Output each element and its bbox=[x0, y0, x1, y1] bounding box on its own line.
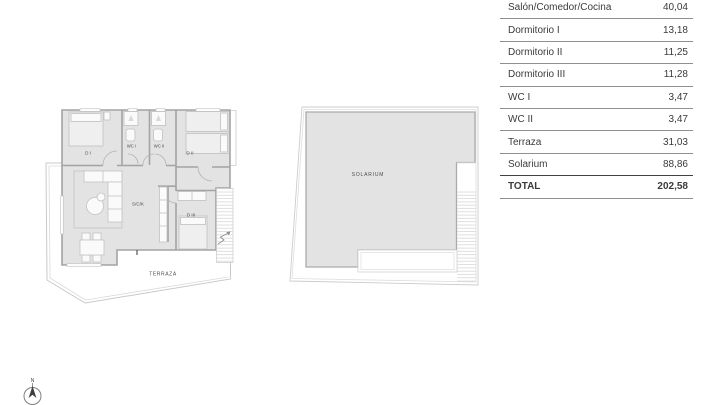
area-table-row: WC I 3,47 bbox=[500, 87, 693, 109]
label-dormitorio3: D III bbox=[187, 213, 195, 218]
room-area: 11,25 bbox=[664, 47, 693, 58]
label-solarium: SOLARIUM bbox=[352, 172, 385, 178]
room-area: 13,18 bbox=[663, 25, 693, 36]
label-wc1: WC I bbox=[127, 144, 136, 149]
solarium-plan: SOLARIUM bbox=[283, 100, 483, 290]
room-name: Dormitorio III bbox=[500, 69, 565, 80]
area-table-row: Solarium 88,86 bbox=[500, 154, 693, 176]
room-name: WC I bbox=[500, 92, 530, 103]
bed-dormitorio3 bbox=[178, 192, 207, 250]
area-table: Salón/Comedor/Cocina 40,04 Dormitorio I … bbox=[500, 0, 693, 199]
area-table-row: Dormitorio III 11,28 bbox=[500, 64, 693, 86]
north-compass: N bbox=[14, 372, 56, 405]
area-table-row: WC II 3,47 bbox=[500, 109, 693, 131]
kitchen-counter bbox=[160, 187, 168, 242]
main-floor-plan: D I WC I WC II D II S/C/K D III TERRAZA bbox=[40, 105, 240, 310]
room-area: 202,58 bbox=[657, 181, 693, 192]
label-dormitorio1: D I bbox=[85, 151, 91, 156]
room-area: 88,86 bbox=[663, 159, 693, 170]
room-area: 40,04 bbox=[663, 2, 693, 13]
room-name: Terraza bbox=[500, 137, 541, 148]
label-wc2: WC II bbox=[154, 144, 164, 149]
label-salon: S/C/K bbox=[132, 202, 145, 207]
area-table-row: Terraza 31,03 bbox=[500, 131, 693, 153]
solarium-floor bbox=[306, 112, 475, 267]
stairs bbox=[217, 189, 234, 263]
room-name: TOTAL bbox=[500, 181, 540, 192]
room-area: 11,28 bbox=[664, 69, 693, 80]
area-table-row: Dormitorio I 13,18 bbox=[500, 19, 693, 41]
room-area: 31,03 bbox=[663, 137, 693, 148]
room-name: Dormitorio I bbox=[500, 25, 560, 36]
void-below bbox=[358, 250, 457, 272]
label-terraza: TERRAZA bbox=[149, 272, 177, 278]
room-name: Solarium bbox=[500, 159, 547, 170]
room-name: Dormitorio II bbox=[500, 47, 562, 58]
room-name: WC II bbox=[500, 114, 533, 125]
room-name: Salón/Comedor/Cocina bbox=[500, 2, 611, 13]
room-area: 3,47 bbox=[669, 114, 693, 125]
area-table-row: TOTAL 202,58 bbox=[500, 176, 693, 198]
label-dormitorio2: D II bbox=[186, 151, 193, 156]
area-table-row: Salón/Comedor/Cocina 40,04 bbox=[500, 0, 693, 19]
room-area: 3,47 bbox=[669, 92, 693, 103]
area-table-row: Dormitorio II 11,25 bbox=[500, 42, 693, 64]
solarium-stairs bbox=[457, 163, 477, 283]
